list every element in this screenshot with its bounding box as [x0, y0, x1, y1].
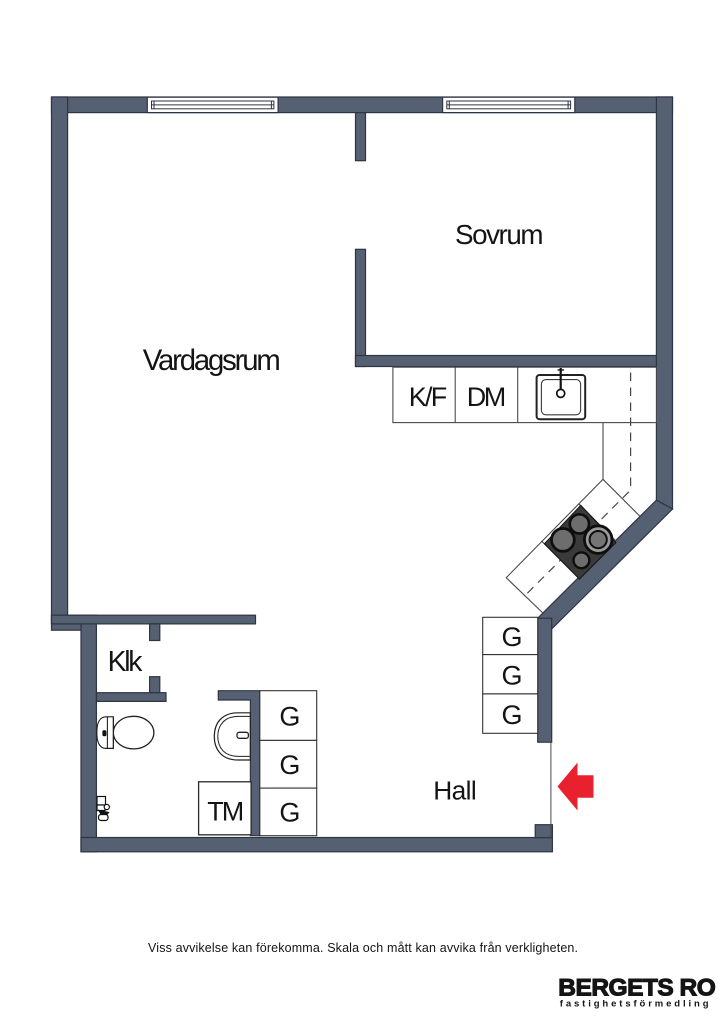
svg-text:G: G — [502, 700, 523, 730]
svg-text:TM: TM — [207, 796, 244, 826]
svg-text:G: G — [279, 798, 300, 828]
svg-text:Hall: Hall — [433, 775, 477, 805]
svg-text:Viss avvikelse kan förekomma.: Viss avvikelse kan förekomma. Skala och … — [148, 941, 578, 955]
svg-text:G: G — [502, 661, 523, 691]
svg-text:K/F: K/F — [409, 382, 448, 412]
svg-text:Sovrum: Sovrum — [455, 219, 544, 250]
svg-text:Vardagsrum: Vardagsrum — [143, 344, 281, 377]
svg-text:Klk: Klk — [108, 645, 144, 677]
svg-text:DM: DM — [467, 382, 507, 412]
svg-text:G: G — [279, 702, 300, 732]
svg-text:G: G — [502, 622, 523, 652]
svg-text:G: G — [279, 750, 300, 780]
